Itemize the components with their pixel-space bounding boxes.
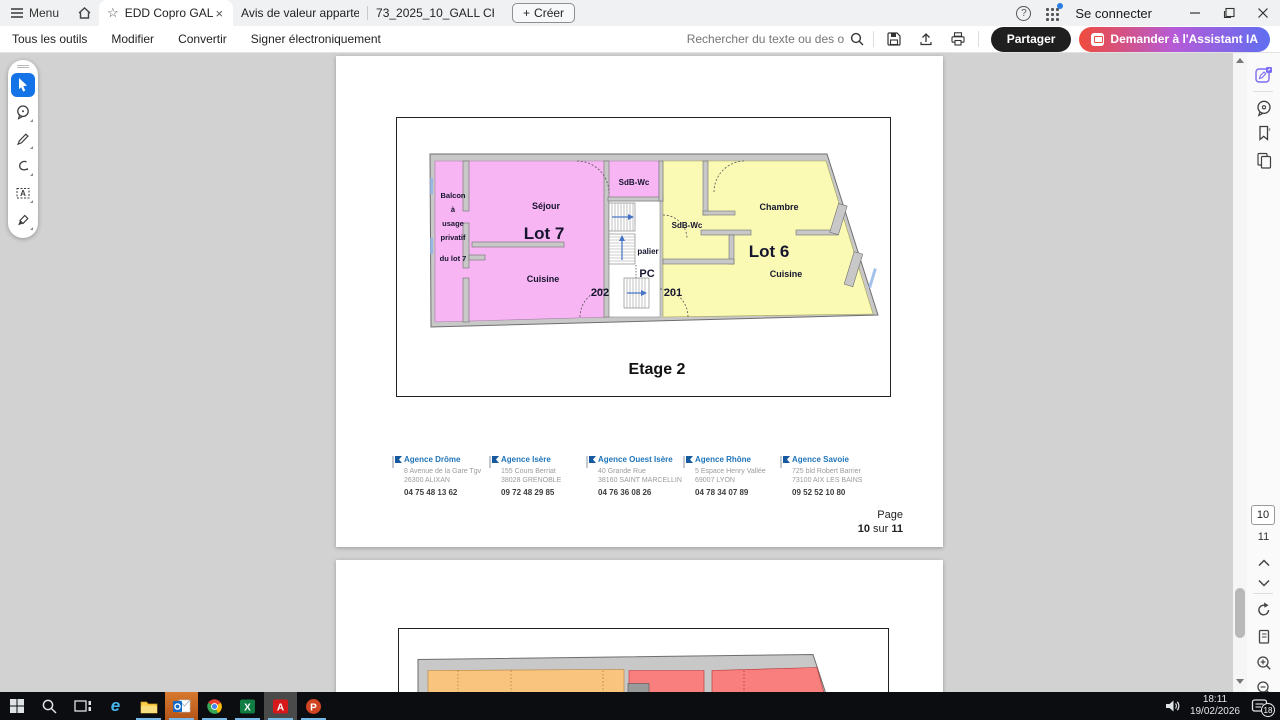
page-total: 11 bbox=[891, 523, 903, 535]
label-sejour: Séjour bbox=[532, 201, 561, 211]
label-balcon-4: privatif bbox=[440, 233, 466, 242]
tab-active-edd-copro[interactable]: ☆ EDD Copro GALL 0... × bbox=[99, 0, 233, 26]
zoom-out-button[interactable] bbox=[1251, 675, 1276, 692]
acrobat-button[interactable]: A bbox=[264, 692, 297, 720]
label-door-201: 201 bbox=[664, 287, 682, 299]
scroll-up-arrow[interactable] bbox=[1236, 58, 1244, 63]
label-chambre: Chambre bbox=[759, 202, 798, 212]
signature-icon bbox=[15, 158, 31, 174]
tab-avis-de-valeur[interactable]: Avis de valeur appartement... bbox=[233, 0, 367, 26]
windows-taskbar: e X A P 18:11 19/02/2026 18 bbox=[0, 692, 1280, 720]
highlight-tool[interactable] bbox=[11, 208, 35, 232]
page-number-input[interactable] bbox=[1251, 505, 1275, 525]
pdf-page-11 bbox=[336, 560, 943, 692]
help-icon: ? bbox=[1021, 8, 1027, 19]
acrobat-toolbar: Tous les outils Modifier Convertir Signe… bbox=[0, 26, 1280, 53]
agency-address: 155 Cours Berriat bbox=[501, 467, 586, 476]
excel-button[interactable]: X bbox=[231, 692, 264, 720]
menu-convertir[interactable]: Convertir bbox=[178, 32, 227, 46]
tab-title: Avis de valeur appartement... bbox=[241, 6, 359, 20]
floorplan-etage-2: Balcon à usage privatif du lot 7 Séjour … bbox=[396, 117, 891, 397]
agency-name: Agence Ouest Isère bbox=[598, 455, 683, 464]
svg-text:A: A bbox=[20, 189, 26, 198]
add-text-icon: A bbox=[15, 185, 31, 201]
pencil-tool[interactable] bbox=[11, 127, 35, 151]
task-view-button[interactable] bbox=[66, 692, 99, 720]
label-lot6: Lot 6 bbox=[749, 242, 790, 261]
acrobat-icon: A bbox=[272, 698, 289, 715]
search-box[interactable] bbox=[687, 31, 865, 47]
notification-dot bbox=[1057, 3, 1063, 9]
drag-handle[interactable] bbox=[17, 65, 29, 68]
bookmark-icon bbox=[1255, 124, 1273, 142]
home-button[interactable] bbox=[69, 0, 99, 26]
label-balcon: Balcon bbox=[440, 191, 465, 200]
close-tab-icon[interactable]: × bbox=[213, 6, 225, 21]
help-button[interactable]: ? bbox=[1016, 6, 1031, 21]
page-view-icon bbox=[1255, 628, 1273, 646]
label-door-202: 202 bbox=[591, 287, 609, 299]
agency-address: 40 Grande Rue bbox=[598, 467, 683, 476]
ai-summary-icon bbox=[1254, 66, 1273, 85]
agency-city: 69007 LYON bbox=[695, 476, 780, 485]
agency-city: 26300 ALIXAN bbox=[404, 476, 489, 485]
plan-caption-etage-2: Etage 2 bbox=[629, 361, 686, 378]
label-pc: PC bbox=[639, 268, 654, 280]
menu-tous-les-outils[interactable]: Tous les outils bbox=[12, 32, 87, 46]
powerpoint-icon: P bbox=[305, 698, 322, 715]
internet-explorer-button[interactable]: e bbox=[99, 692, 132, 720]
page-indicator-label: Page bbox=[877, 509, 903, 521]
maximize-button[interactable] bbox=[1212, 0, 1246, 26]
agency-phone: 04 76 36 08 26 bbox=[598, 488, 683, 497]
flag-icon bbox=[489, 456, 499, 468]
agency-address: 725 bld Robert Barrier bbox=[792, 467, 877, 476]
label-balcon-5: du lot 7 bbox=[440, 254, 467, 263]
assistant-chat-icon bbox=[1091, 33, 1104, 46]
label-cuisine-lot7: Cuisine bbox=[527, 274, 560, 284]
bookmarks-panel-button[interactable] bbox=[1251, 120, 1276, 145]
comments-icon bbox=[1255, 99, 1273, 117]
windows-logo-icon bbox=[9, 698, 25, 714]
home-icon bbox=[77, 6, 92, 20]
printer-icon bbox=[950, 31, 966, 47]
agency-city: 38028 GRENOBLE bbox=[501, 476, 586, 485]
chrome-icon bbox=[206, 698, 223, 715]
agency-name: Agence Drôme bbox=[404, 455, 489, 464]
tab-title: 73_2025_10_GALL CHRIS... bbox=[376, 6, 494, 20]
flag-icon bbox=[392, 456, 402, 468]
comments-panel-button[interactable] bbox=[1251, 95, 1276, 120]
agency-name: Agence Savoie bbox=[792, 455, 877, 464]
zoom-in-icon bbox=[1255, 654, 1273, 672]
agency-address: 8 Avenue de la Gare Tgv bbox=[404, 467, 489, 476]
powerpoint-button[interactable]: P bbox=[297, 692, 330, 720]
scroll-thumb[interactable] bbox=[1235, 588, 1245, 638]
agency-phone: 09 52 52 10 80 bbox=[792, 488, 877, 497]
add-text-tool[interactable]: A bbox=[11, 181, 35, 205]
floorplan-next-page bbox=[398, 628, 889, 692]
agencies-footer: Agence Drôme 8 Avenue de la Gare Tgv 263… bbox=[392, 455, 877, 497]
pages-icon bbox=[1255, 151, 1273, 169]
share-file-button[interactable] bbox=[914, 27, 938, 51]
action-center-button[interactable]: 18 bbox=[1248, 695, 1272, 717]
highlighter-icon bbox=[15, 212, 31, 228]
pdf-page-10: Balcon à usage privatif du lot 7 Séjour … bbox=[336, 56, 943, 547]
chevron-up-icon bbox=[1256, 556, 1272, 570]
agency-city: 38160 SAINT MARCELLIN bbox=[598, 476, 683, 485]
folder-icon bbox=[140, 699, 158, 714]
notification-badge: 18 bbox=[1261, 703, 1275, 717]
excel-icon: X bbox=[239, 698, 256, 715]
scroll-down-arrow[interactable] bbox=[1236, 679, 1244, 684]
label-balcon-3: usage bbox=[442, 219, 464, 228]
page-view-button[interactable] bbox=[1251, 624, 1276, 649]
svg-text:P: P bbox=[310, 702, 317, 713]
scrollbar[interactable] bbox=[1233, 53, 1247, 692]
label-cuisine-lot6: Cuisine bbox=[770, 269, 803, 279]
search-icon[interactable] bbox=[849, 31, 865, 47]
rotate-icon bbox=[1255, 601, 1273, 619]
create-label: Créer bbox=[534, 6, 564, 20]
signin-button[interactable]: Se connecter bbox=[1075, 6, 1152, 21]
ie-icon: e bbox=[111, 696, 120, 716]
agency-phone: 09 72 48 29 85 bbox=[501, 488, 586, 497]
taskbar-search-button[interactable] bbox=[33, 692, 66, 720]
time: 18:11 bbox=[1190, 694, 1240, 706]
date: 19/02/2026 bbox=[1190, 706, 1240, 718]
divider bbox=[873, 31, 874, 47]
start-button[interactable] bbox=[0, 692, 33, 720]
svg-text:A: A bbox=[277, 702, 284, 713]
create-button[interactable]: + Créer bbox=[512, 3, 575, 23]
outlook-button[interactable] bbox=[165, 692, 198, 720]
task-view-icon bbox=[74, 698, 92, 714]
ai-assistant-button[interactable]: Demander à l'Assistant IA bbox=[1079, 27, 1270, 52]
ai-assistant-panel-button[interactable] bbox=[1251, 63, 1276, 88]
menu-signer[interactable]: Signer électroniquement bbox=[251, 32, 381, 46]
svg-text:X: X bbox=[244, 702, 251, 713]
share-button[interactable]: Partager bbox=[991, 27, 1072, 52]
save-icon bbox=[886, 31, 902, 47]
close-icon bbox=[1257, 7, 1269, 19]
quick-tools-panel: A bbox=[8, 60, 38, 238]
agency-card-savoie: Agence Savoie 725 bld Robert Barrier 731… bbox=[780, 455, 877, 497]
print-button[interactable] bbox=[946, 27, 970, 51]
search-icon bbox=[41, 698, 58, 715]
agency-address: 5 Espace Henry Vallée bbox=[695, 467, 780, 476]
menu-label: Menu bbox=[29, 6, 59, 20]
cursor-icon bbox=[15, 77, 31, 93]
apps-grid-button[interactable] bbox=[1045, 5, 1061, 21]
divider bbox=[1253, 91, 1273, 92]
zoom-out-icon bbox=[1255, 679, 1273, 693]
agency-card-drome: Agence Drôme 8 Avenue de la Gare Tgv 263… bbox=[392, 455, 489, 497]
agency-phone: 04 78 34 07 89 bbox=[695, 488, 780, 497]
signature-tool[interactable] bbox=[11, 154, 35, 178]
close-window-button[interactable] bbox=[1246, 0, 1280, 26]
page-thumbnails-panel-button[interactable] bbox=[1251, 147, 1276, 172]
plus-icon: + bbox=[523, 6, 530, 20]
agency-card-ouest-isere: Agence Ouest Isère 40 Grande Rue 38160 S… bbox=[586, 455, 683, 497]
next-page-button[interactable] bbox=[1251, 570, 1276, 595]
flag-icon bbox=[780, 456, 790, 468]
outlook-icon bbox=[172, 698, 191, 714]
agency-name: Agence Isère bbox=[501, 455, 586, 464]
divider bbox=[1253, 593, 1273, 594]
label-sdbwc-lot6: SdB-Wc bbox=[672, 221, 703, 230]
comment-tool[interactable] bbox=[11, 100, 35, 124]
agency-phone: 04 75 48 13 62 bbox=[404, 488, 489, 497]
page-current: 10 bbox=[858, 523, 870, 535]
right-panel-rail: 11 bbox=[1247, 53, 1280, 692]
rotate-page-button[interactable] bbox=[1251, 597, 1276, 622]
agency-card-isere: Agence Isère 155 Cours Berriat 38028 GRE… bbox=[489, 455, 586, 497]
search-input[interactable] bbox=[687, 32, 845, 46]
minimize-button[interactable] bbox=[1178, 0, 1212, 26]
pencil-icon bbox=[15, 131, 31, 147]
divider bbox=[978, 31, 979, 47]
select-tool[interactable] bbox=[11, 73, 35, 97]
label-sdbwc-lot7: SdB-Wc bbox=[619, 178, 650, 187]
label-lot7: Lot 7 bbox=[524, 224, 565, 243]
tab-title: EDD Copro GALL 0... bbox=[125, 6, 214, 20]
agency-card-rhone: Agence Rhône 5 Espace Henry Vallée 69007… bbox=[683, 455, 780, 497]
menu-button[interactable]: Menu bbox=[0, 0, 69, 26]
next-page-number: 11 bbox=[1247, 531, 1280, 543]
chevron-down-icon bbox=[1256, 576, 1272, 590]
label-palier: palier bbox=[637, 247, 658, 256]
save-button[interactable] bbox=[882, 27, 906, 51]
menu-modifier[interactable]: Modifier bbox=[111, 32, 154, 46]
comment-icon bbox=[15, 104, 31, 120]
chrome-button[interactable] bbox=[198, 692, 231, 720]
assistant-label: Demander à l'Assistant IA bbox=[1110, 32, 1258, 46]
taskbar-clock[interactable]: 18:11 19/02/2026 bbox=[1190, 694, 1240, 718]
titlebar: Menu ☆ EDD Copro GALL 0... × Avis de val… bbox=[0, 0, 1280, 26]
zoom-in-button[interactable] bbox=[1251, 650, 1276, 675]
agency-city: 73100 AIX LES BAINS bbox=[792, 476, 877, 485]
page-sep: sur bbox=[873, 523, 888, 535]
agency-name: Agence Rhône bbox=[695, 455, 780, 464]
star-icon: ☆ bbox=[107, 5, 119, 21]
hamburger-icon bbox=[10, 7, 24, 19]
minimize-icon bbox=[1189, 7, 1201, 19]
volume-icon[interactable] bbox=[1165, 698, 1182, 714]
flag-icon bbox=[683, 456, 693, 468]
document-canvas: Balcon à usage privatif du lot 7 Séjour … bbox=[0, 53, 1280, 692]
tab-73-2025-gall[interactable]: 73_2025_10_GALL CHRIS... bbox=[368, 0, 502, 26]
maximize-icon bbox=[1223, 7, 1235, 19]
file-explorer-button[interactable] bbox=[132, 692, 165, 720]
upload-icon bbox=[918, 31, 934, 47]
page-indicator: Page 10 sur 11 bbox=[808, 508, 903, 536]
flag-icon bbox=[586, 456, 596, 468]
